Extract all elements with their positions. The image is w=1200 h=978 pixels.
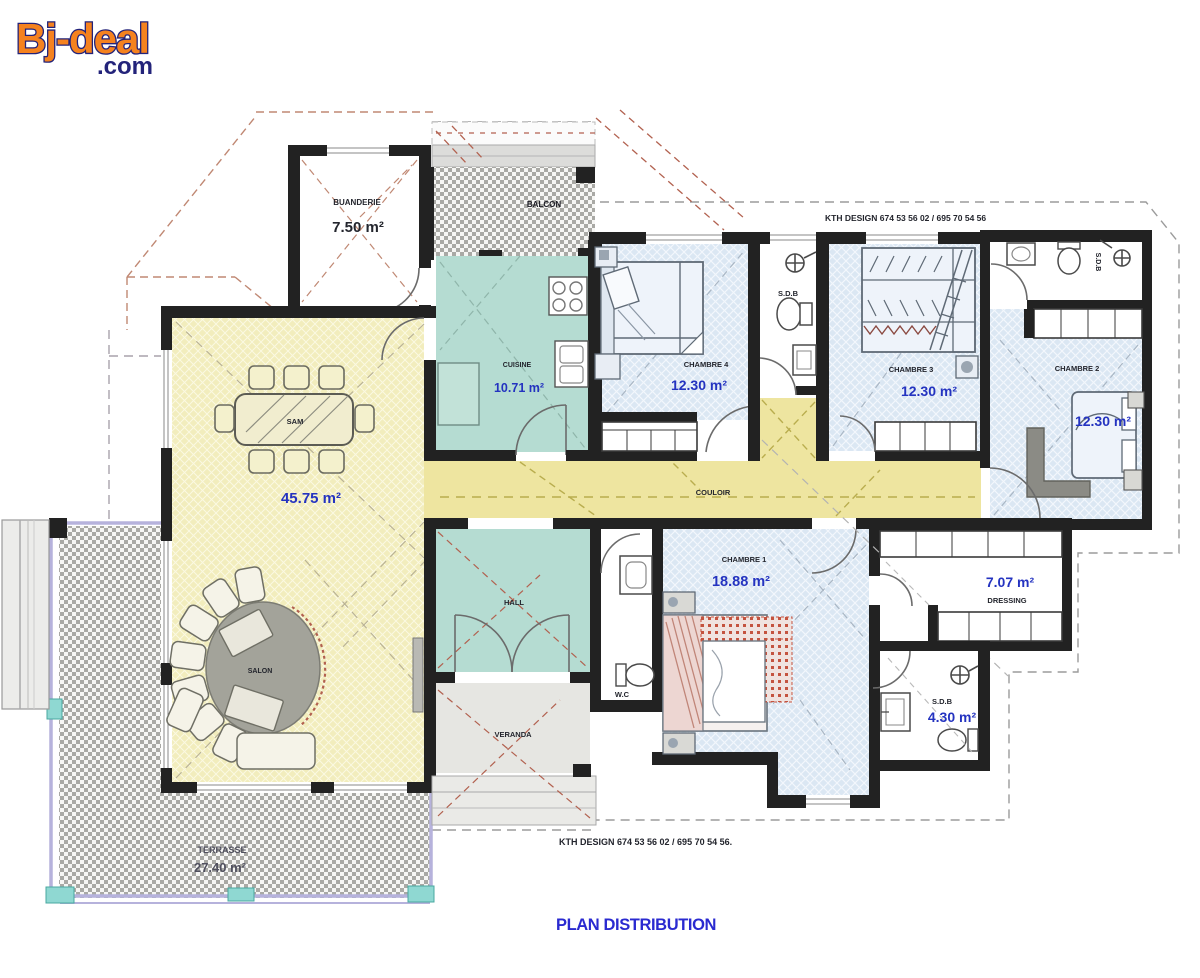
svg-text:12.30 m²: 12.30 m² [671, 377, 727, 393]
svg-text:CHAMBRE 3: CHAMBRE 3 [889, 365, 934, 374]
svg-text:DRESSING: DRESSING [987, 596, 1026, 605]
svg-text:COULOIR: COULOIR [696, 488, 731, 497]
svg-text:7.50 m²: 7.50 m² [332, 219, 384, 236]
svg-text:.com: .com [97, 53, 153, 80]
svg-text:S.D.B: S.D.B [932, 697, 953, 706]
svg-text:VERANDA: VERANDA [494, 730, 532, 739]
svg-text:PLAN DISTRIBUTION: PLAN DISTRIBUTION [556, 916, 716, 934]
svg-text:BUANDERIE: BUANDERIE [333, 198, 381, 207]
svg-text:SAM: SAM [287, 417, 304, 426]
svg-text:KTH DESIGN 674 53 56 02 / 695: KTH DESIGN 674 53 56 02 / 695 70 54 56 [825, 213, 986, 223]
svg-text:BALCON: BALCON [527, 200, 561, 209]
svg-text:10.71 m²: 10.71 m² [494, 381, 544, 395]
svg-text:HALL: HALL [504, 598, 524, 607]
svg-text:W.C: W.C [615, 690, 630, 699]
svg-text:18.88 m²: 18.88 m² [712, 574, 770, 590]
svg-text:S.D.B: S.D.B [778, 289, 799, 298]
svg-text:4.30 m²: 4.30 m² [928, 709, 977, 725]
svg-text:SALON: SALON [248, 668, 273, 675]
svg-text:CHAMBRE 4: CHAMBRE 4 [684, 360, 729, 369]
svg-text:TERRASSE: TERRASSE [197, 845, 246, 855]
svg-text:CHAMBRE 2: CHAMBRE 2 [1055, 364, 1100, 373]
svg-text:7.07 m²: 7.07 m² [986, 574, 1035, 590]
svg-text:KTH DESIGN 674 53 56 02 / 695: KTH DESIGN 674 53 56 02 / 695 70 54 56. [559, 837, 732, 847]
svg-text:S.D.B: S.D.B [1094, 253, 1101, 272]
svg-text:12.30 m²: 12.30 m² [1075, 413, 1131, 429]
svg-text:27.40 m²: 27.40 m² [194, 860, 247, 875]
svg-text:45.75 m²: 45.75 m² [281, 490, 341, 507]
svg-text:CHAMBRE 1: CHAMBRE 1 [722, 555, 767, 564]
svg-text:12.30 m²: 12.30 m² [901, 383, 957, 399]
svg-text:CUISINE: CUISINE [503, 362, 532, 369]
